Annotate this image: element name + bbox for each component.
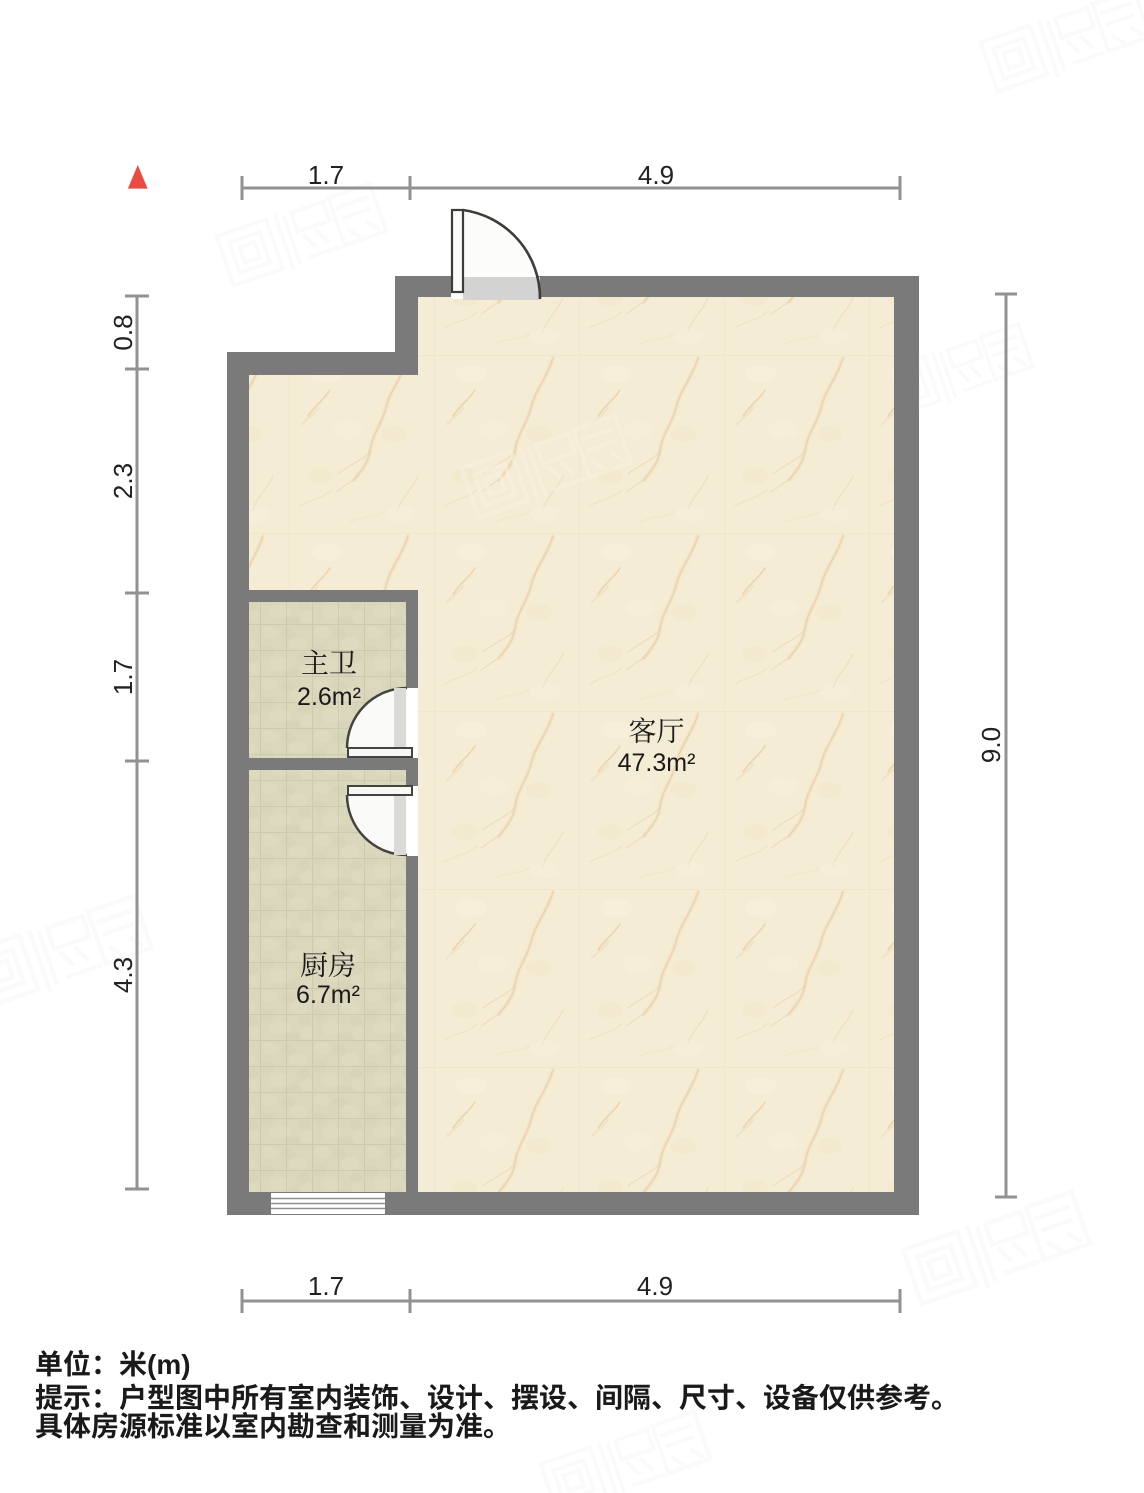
svg-text:4.9: 4.9	[637, 1271, 673, 1301]
svg-text:1.7: 1.7	[308, 1271, 344, 1301]
svg-text:4.3: 4.3	[108, 957, 138, 993]
svg-text:(m): (m)	[147, 1349, 191, 1380]
svg-text:9.0: 9.0	[976, 727, 1006, 763]
svg-text:47.3m²: 47.3m²	[618, 749, 696, 777]
svg-text:1.7: 1.7	[108, 659, 138, 695]
svg-text:2.6m²: 2.6m²	[297, 683, 361, 711]
svg-text:1.7: 1.7	[308, 160, 344, 190]
svg-text:4.9: 4.9	[638, 160, 674, 190]
svg-text:0.8: 0.8	[108, 314, 138, 350]
svg-text:2.3: 2.3	[108, 463, 138, 499]
svg-text:6.7m²: 6.7m²	[296, 981, 360, 1009]
